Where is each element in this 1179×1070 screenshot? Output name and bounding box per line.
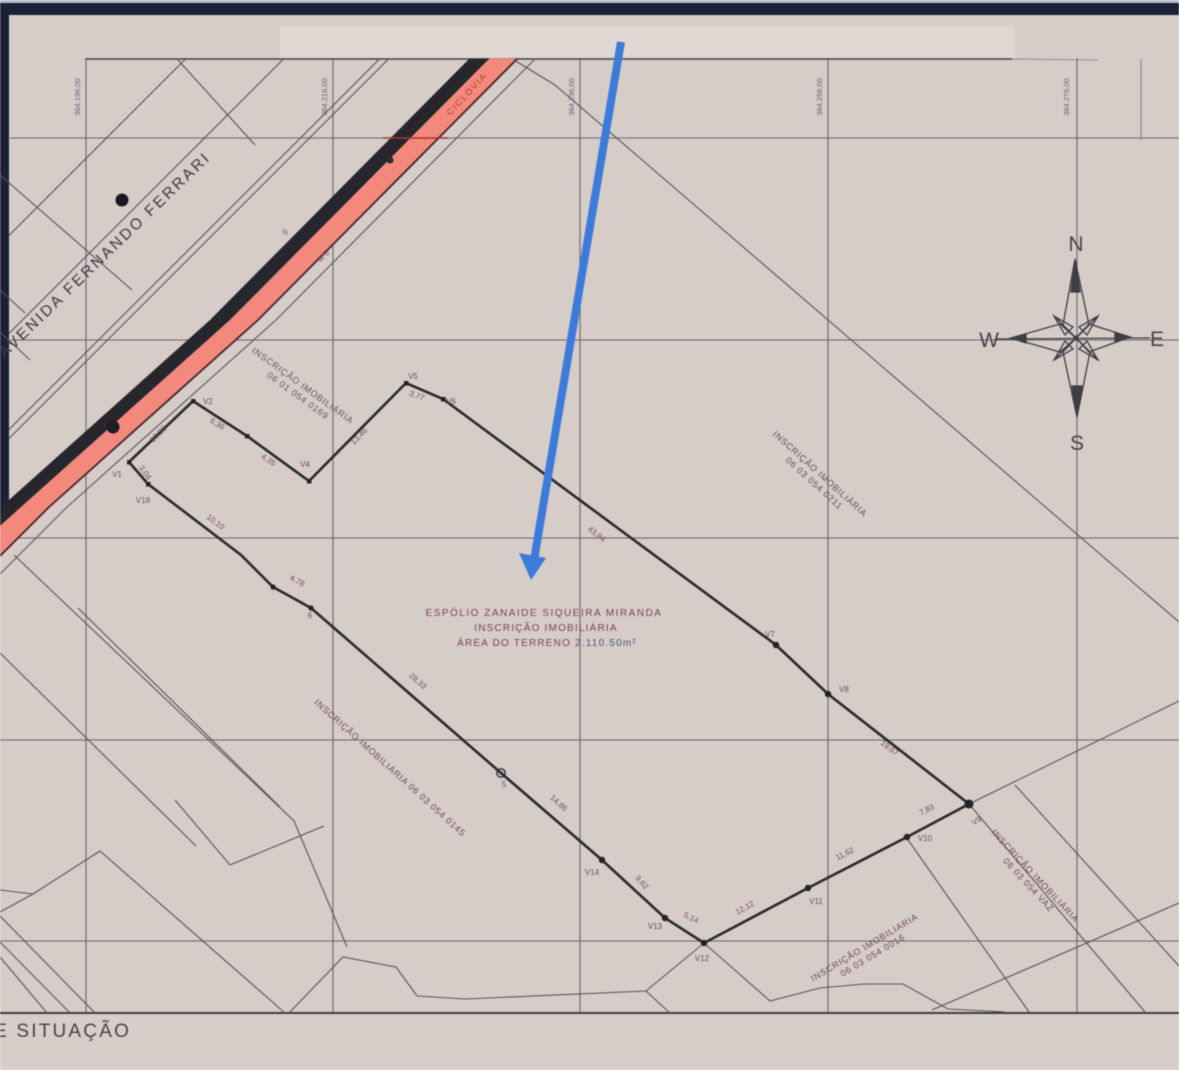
svg-text:S: S (1070, 432, 1084, 455)
svg-text:N: N (1068, 233, 1083, 256)
svg-text:V4: V4 (300, 460, 310, 469)
svg-text:364.196,00: 364.196,00 (73, 78, 82, 116)
svg-text:V6: V6 (446, 397, 456, 406)
svg-text:V5: V5 (408, 372, 418, 381)
svg-text:V10: V10 (918, 834, 933, 843)
svg-text:V11: V11 (809, 897, 823, 906)
svg-text:E: E (1150, 328, 1164, 351)
svg-text:E SITUAÇÃO: E SITUAÇÃO (0, 1020, 131, 1042)
svg-text:6: 6 (308, 611, 313, 620)
svg-text:W: W (979, 329, 999, 352)
svg-text:364.216,00: 364.216,00 (320, 78, 329, 116)
svg-text:364.236,00: 364.236,00 (567, 78, 576, 116)
svg-text:INSCRIÇÃO IMOBILIÁRIA: INSCRIÇÃO IMOBILIÁRIA (474, 621, 618, 634)
svg-text:V13: V13 (648, 922, 663, 931)
svg-text:V2: V2 (203, 397, 213, 406)
svg-text:364.256,00: 364.256,00 (815, 78, 824, 116)
svg-text:V1: V1 (112, 470, 122, 479)
svg-text:V7: V7 (765, 630, 775, 639)
svg-text:ESPÓLIO ZANAIDE SIQUEIRA MIRAN: ESPÓLIO ZANAIDE SIQUEIRA MIRANDA (426, 606, 663, 619)
svg-text:ÁREA DO TERRENO 2.110.50m²: ÁREA DO TERRENO 2.110.50m² (457, 636, 637, 649)
svg-text:5: 5 (502, 780, 507, 789)
svg-text:V18: V18 (136, 496, 151, 505)
svg-text:V14: V14 (585, 868, 600, 877)
svg-text:V12: V12 (695, 954, 710, 963)
svg-text:V8: V8 (839, 685, 849, 694)
svg-text:364.276,00: 364.276,00 (1062, 78, 1071, 116)
